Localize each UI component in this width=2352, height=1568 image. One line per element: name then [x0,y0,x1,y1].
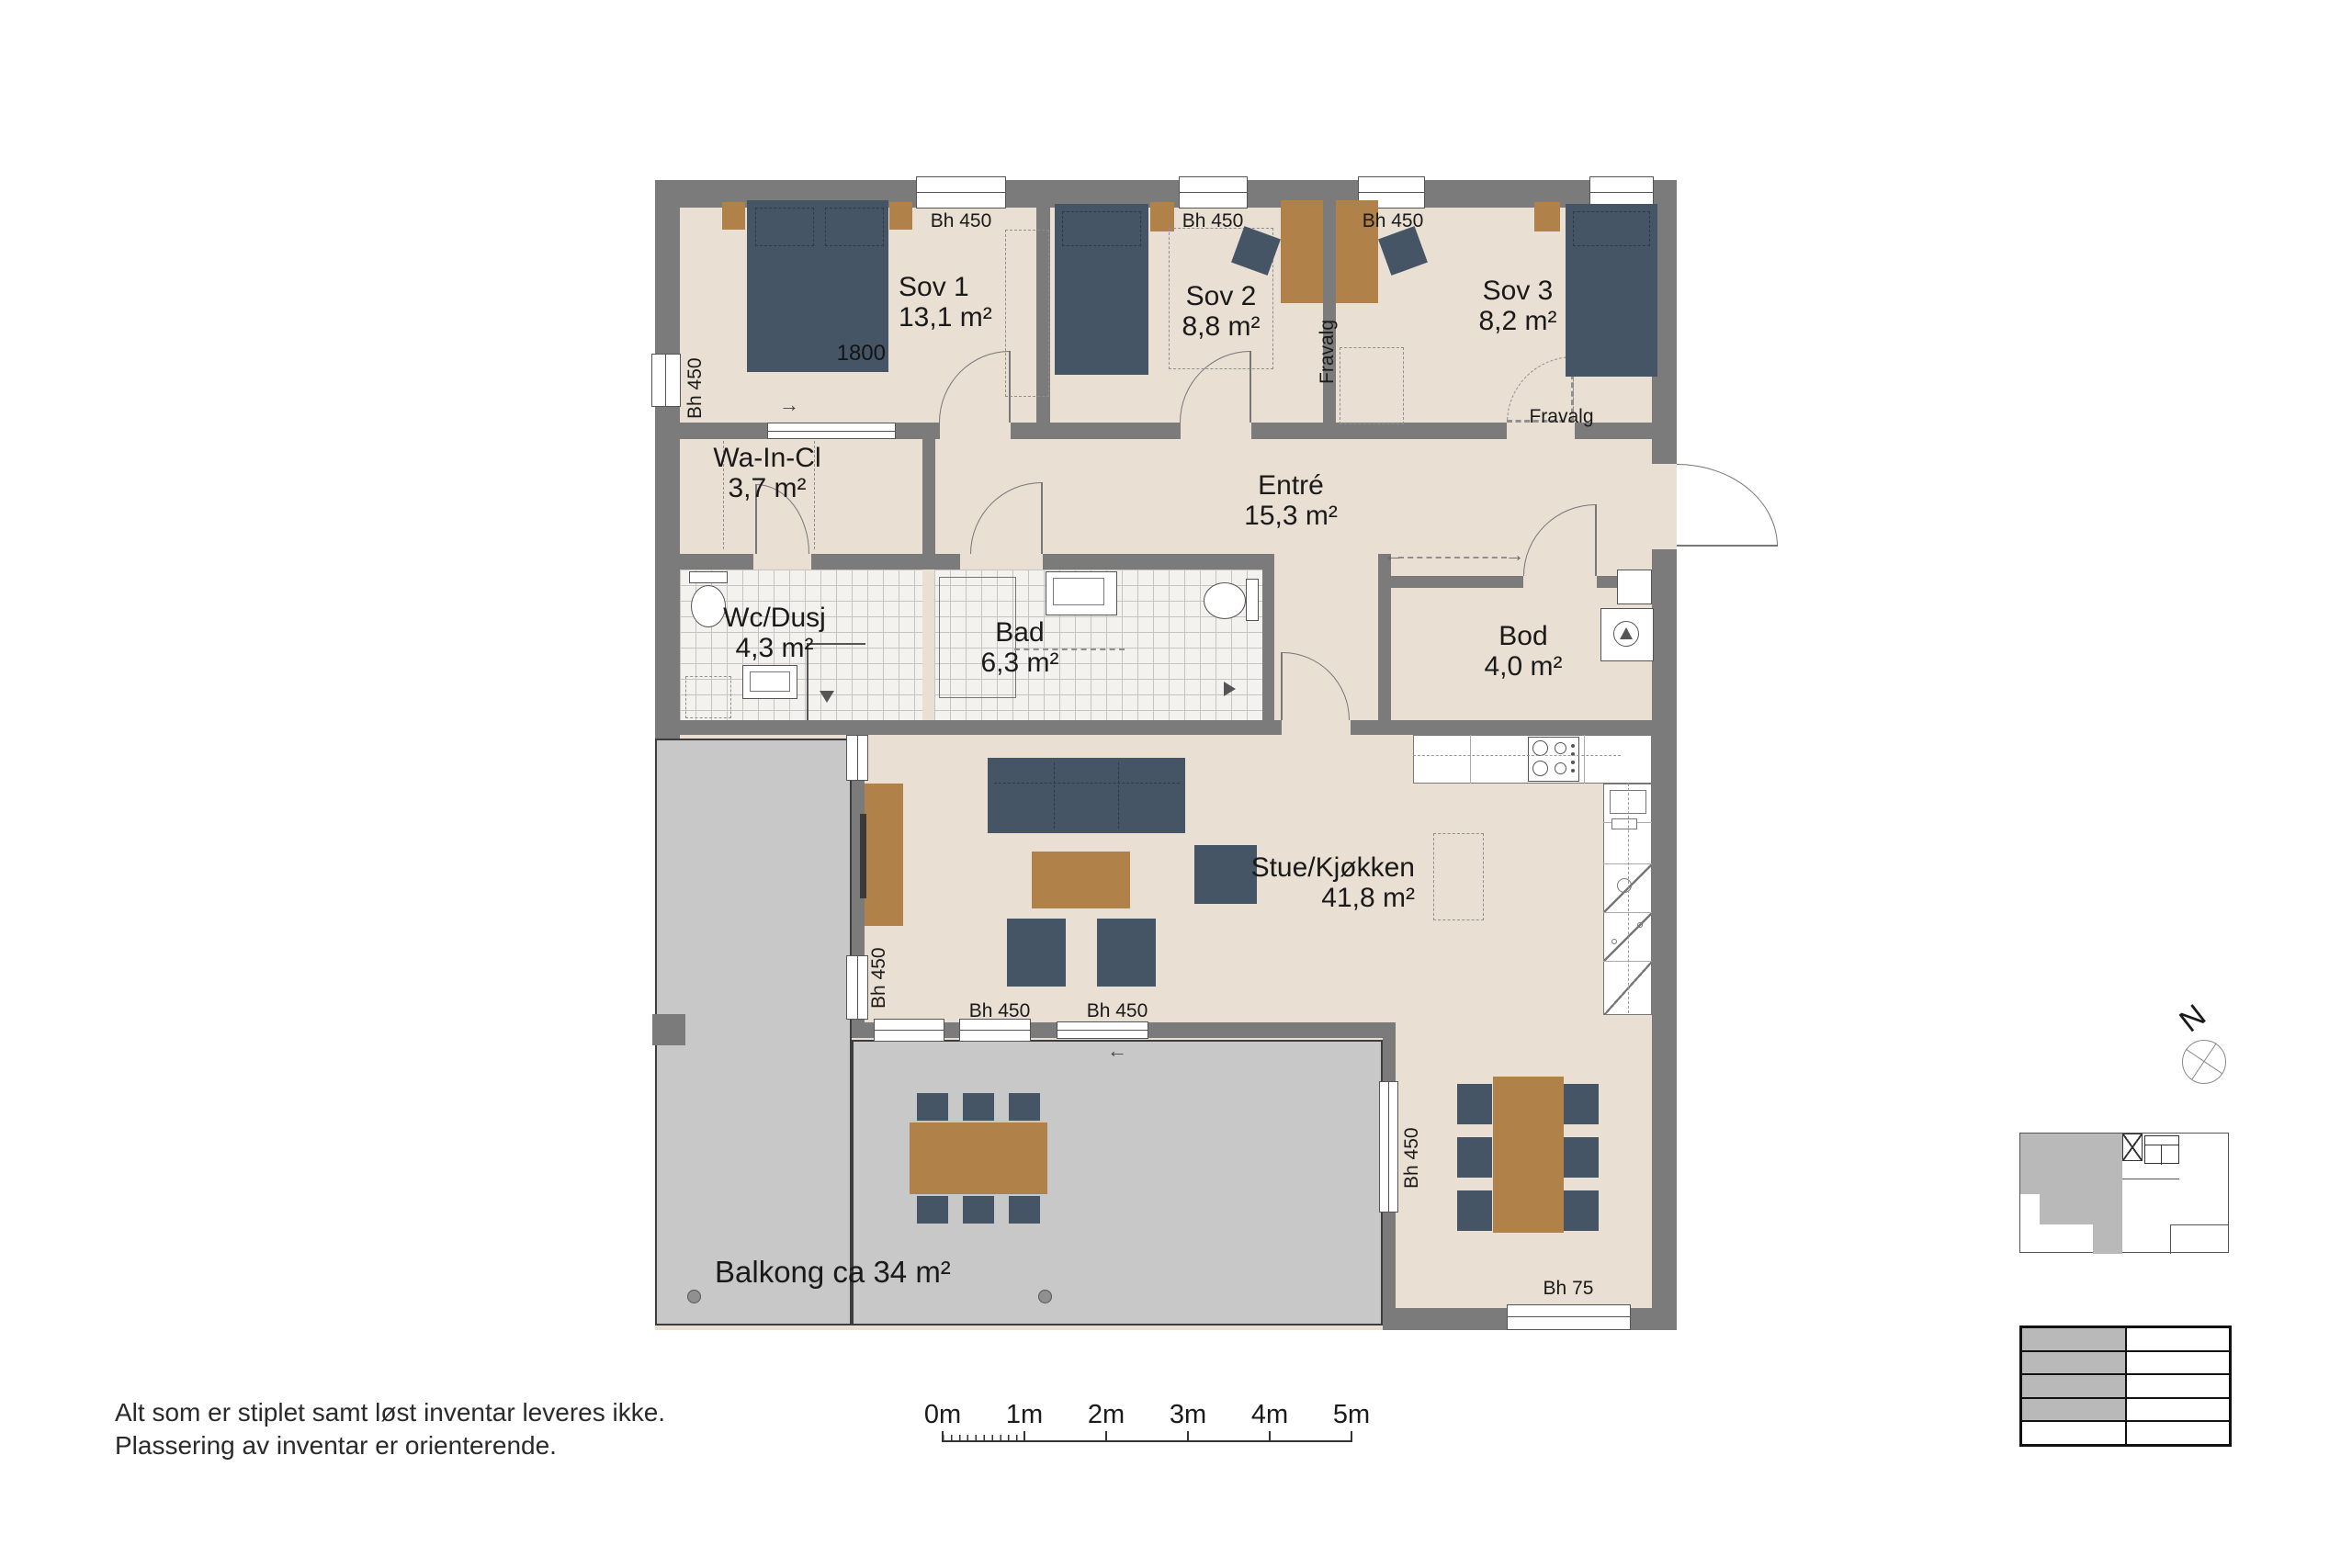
scale-label: 0m [915,1400,970,1430]
upper-cabinet-line [1413,755,1621,756]
stairs-line [2145,1145,2178,1145]
room-area: 4,0 m² [1454,651,1592,682]
cabinet-icon-dot [1637,922,1643,928]
wall-segment [680,554,753,570]
keyplan-building [2019,1133,2229,1253]
window [1507,1304,1631,1330]
sill-height-label: Bh 450 [917,211,1005,231]
water-heater-triangle-icon [1620,627,1633,639]
room-name: Sov 3 [1444,276,1591,306]
tv [860,814,866,898]
wall-segment [1029,1022,1057,1038]
floor-cell-highlighted [2021,1374,2126,1398]
coffee-table [1032,852,1130,908]
room-bad-label: Bad 6,3 m² [951,617,1089,678]
wall-segment [655,180,680,739]
wall-segment [1383,1038,1396,1081]
wall-segment [655,720,1282,735]
kitchen-sink [1611,818,1637,829]
upper-cabinet-line [1628,784,1629,1013]
balcony-table [910,1122,1047,1194]
scale-tick [1187,1431,1189,1442]
nightstand [889,202,912,230]
floor-cell [2126,1398,2231,1422]
floor-cell [2126,1351,2231,1375]
room-stue-label: Stue/Kjøkken 41,8 m² [1222,852,1415,913]
sofa-seam [1054,762,1055,829]
wall-segment [1262,554,1274,735]
window [651,354,681,407]
room-name: Sov 2 [1148,281,1295,311]
knob [1571,769,1575,773]
pillow [1573,211,1650,246]
fravalg-label-vertical: Fravalg [1317,299,1341,384]
sill-height-label: Bh 450 [1073,1001,1161,1021]
dining-table [1493,1077,1564,1233]
keyplan-wall-line [2122,1179,2179,1179]
kitchen-optional-zone [1433,833,1484,920]
sill-height-label: Bh 450 [869,935,889,1009]
north-label: N [2166,992,2219,1043]
fravalg-label: Fravalg [1518,407,1605,427]
room-area: 3,7 m² [698,473,836,503]
counter-divider [1470,735,1471,784]
elevator-x-icon [2123,1134,2142,1160]
sliding-door [767,423,896,439]
pillow [755,208,814,246]
sill-height-label: Bh 450 [685,345,706,419]
balcony-sliding-door [1057,1021,1148,1039]
wall-segment [680,423,767,439]
wall-segment [1148,1022,1396,1038]
slide-arrow-icon: ← [1107,1041,1135,1061]
room-name: Entré [1217,470,1364,501]
scale-label: 5m [1324,1400,1379,1430]
room-name: Bod [1454,621,1592,651]
balcony-chair [963,1093,994,1121]
burner [1532,761,1548,776]
desk [1281,200,1323,303]
dishwasher-icon-circle [1617,878,1632,893]
balcony-chair [963,1196,994,1224]
room-entre-label: Entré 15,3 m² [1217,470,1364,531]
dining-chair [1457,1137,1492,1178]
stairs-line [2161,1145,2162,1165]
sink-basin [750,671,790,692]
dining-chair [1457,1084,1492,1124]
sofa-seam [1118,762,1119,829]
balcony-post [1038,1290,1052,1303]
shower-drain-icon [820,691,834,703]
balcony-chair [917,1196,948,1224]
sink-basin [1053,578,1104,605]
floor-cell [2126,1374,2231,1398]
note-line-1: Alt som er stiplet samt løst inventar le… [115,1396,740,1429]
room-name: Sov 1 [899,272,1055,302]
floor-cell [2126,1421,2231,1445]
floor-cell-highlighted [2021,1398,2126,1422]
wall-segment [1043,554,1262,570]
wall-segment [1652,549,1677,1330]
nightstand [1534,202,1560,231]
wardrobe-zone [1340,347,1404,424]
room-name: Bad [951,617,1089,648]
scale-tick [1269,1431,1271,1442]
note-line-2: Plassering av inventar er orienterende. [115,1429,740,1462]
burner [1555,762,1566,774]
sill-height-label: Bh 450 [1169,211,1257,231]
room-area: 6,3 m² [951,648,1089,678]
sill-height-label: Bh 450 [955,1001,1044,1021]
balcony-chair [1009,1196,1040,1224]
balcony-post [687,1290,701,1303]
bed-width-dimension: 1800 [825,344,886,364]
wall-segment [1383,1308,1507,1330]
room-name: Stue/Kjøkken [1222,852,1415,883]
dining-chair [1457,1190,1492,1231]
pillow [825,208,884,246]
floorplan-page: Sov 1 13,1 m² 1800 → Sov 2 8,8 m² Fraval… [0,0,2352,1568]
scale-minor-ticks [943,1435,1024,1442]
toilet-tank [1246,579,1259,621]
window [916,176,1006,209]
window [1379,1081,1398,1213]
floor-cell [2126,1327,2231,1351]
floor-cell-highlighted [2021,1327,2126,1351]
floor-cell [2021,1421,2126,1445]
dining-chair [1564,1084,1599,1124]
window [874,1019,944,1042]
room-balkong-label: Balkong ca 34 m² [715,1257,1009,1287]
dining-chair [1564,1190,1599,1231]
sill-height-label: Bh 75 [1527,1279,1610,1299]
burner [1555,742,1566,754]
wall-segment [811,554,960,570]
sill-height-label: Bh 450 [1349,211,1437,231]
pillow [1062,211,1141,246]
wall-segment [1251,423,1507,439]
room-name: Wa-In-Cl [698,443,836,473]
counter-divider [1584,735,1585,784]
wall-segment [1383,1213,1396,1308]
room-sov1-label: Sov 1 13,1 m² [899,272,1055,333]
wall-segment [852,1022,876,1038]
scale-label: 2m [1079,1400,1134,1430]
scale-label: 4m [1242,1400,1297,1430]
wall-segment [1351,720,1677,735]
toilet [1204,582,1246,619]
armchair [1007,919,1066,987]
room-wain-label: Wa-In-Cl 3,7 m² [698,443,836,503]
wall-segment [1378,576,1523,588]
sofa-seam [994,783,1180,784]
room-bod-label: Bod 4,0 m² [1454,621,1592,682]
window [846,735,868,781]
window [846,955,868,1020]
cabinet-icon-dot [1611,939,1617,944]
sill-height-label: Bh 450 [1402,1115,1422,1189]
shower-drain-icon [1224,682,1236,696]
nightstand [722,202,745,230]
scale-tick [1105,1431,1107,1442]
wall-segment [1631,1308,1677,1330]
sofa [988,758,1185,833]
armchair [1097,919,1156,987]
entry-door-arc [1677,464,1778,547]
room-name: Wc/Dusj [706,603,843,633]
knob [1571,744,1575,748]
room-wc-label: Wc/Dusj 4,3 m² [706,603,843,663]
cabinet [1617,570,1652,604]
room-area: 8,8 m² [1148,311,1295,342]
elevator-icon [2122,1134,2143,1161]
wall-segment [922,423,935,570]
balcony-chair [1009,1093,1040,1121]
disclaimer-note: Alt som er stiplet samt løst inventar le… [115,1396,740,1462]
floor-indicator-table [2019,1325,2232,1447]
knob [1571,761,1575,764]
room-area: 15,3 m² [1217,501,1364,531]
room-area: 4,3 m² [706,633,843,663]
scale-tick [1351,1431,1352,1442]
toilet-tank [689,571,728,583]
floor-cell-highlighted [2021,1351,2126,1375]
balcony-pier [652,1014,685,1045]
tv-bench [865,784,903,926]
scale-label: 1m [997,1400,1052,1430]
window [1179,176,1248,209]
slide-arrow-icon: ← [1384,546,1402,566]
dining-chair [1564,1137,1599,1178]
room-sov3-label: Sov 3 8,2 m² [1444,276,1591,336]
stairs-icon [2144,1135,2179,1164]
sliding-wardrobe-line [1398,557,1507,558]
room-area: 8,2 m² [1444,306,1591,336]
scale-label: 3m [1160,1400,1216,1430]
slide-arrow-icon: → [1505,546,1523,566]
balcony-chair [917,1093,948,1121]
slide-arrow-icon: → [779,395,807,415]
window [959,1019,1031,1042]
room-area: 13,1 m² [899,302,1055,333]
scale-bar: 0m 1m 2m 3m 4m 5m [915,1400,1393,1455]
keyplan-notch [2170,1224,2229,1254]
washer-zone [685,676,731,718]
room-sov2-label: Sov 2 8,8 m² [1148,281,1295,342]
room-area: 41,8 m² [1222,883,1415,913]
burner [1532,740,1548,756]
